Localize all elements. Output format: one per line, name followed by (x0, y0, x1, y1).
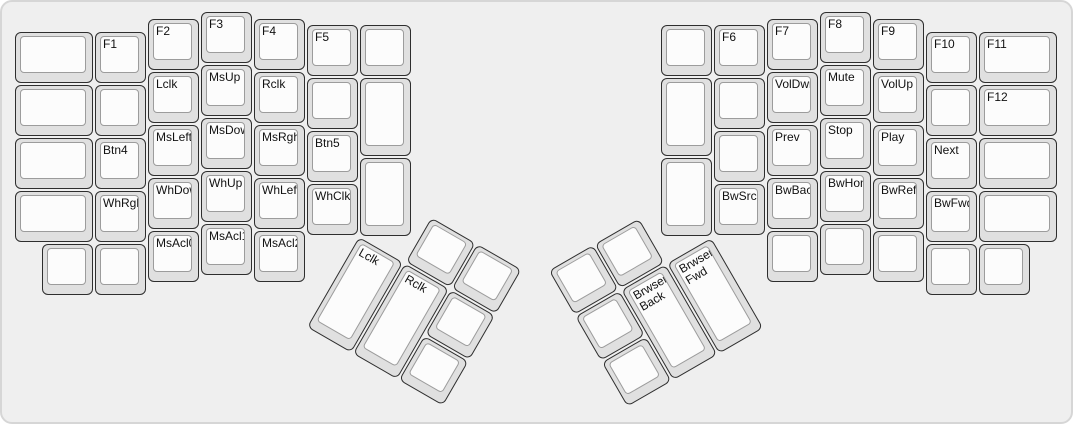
key-label: MsDown (209, 124, 242, 137)
keytop: Stop (825, 122, 864, 159)
key-label: F9 (881, 25, 914, 38)
key-blank[interactable] (979, 244, 1030, 295)
key-label: Play (881, 131, 914, 144)
key-label: F4 (262, 25, 295, 38)
key-stop[interactable]: Stop (820, 118, 871, 169)
key-bwsrch[interactable]: BwSrch (714, 184, 765, 235)
key-f5[interactable]: F5 (307, 25, 358, 76)
key-msleft[interactable]: MsLeft (148, 125, 199, 176)
keytop: F9 (878, 23, 917, 60)
key-volup[interactable]: VolUp (873, 72, 924, 123)
key-whleft[interactable]: WhLeft (254, 178, 305, 229)
key-blank[interactable] (360, 25, 411, 76)
key-blank[interactable] (661, 158, 712, 236)
key-mute[interactable]: Mute (820, 65, 871, 116)
key-label: BwHome (828, 177, 861, 190)
key-label: F6 (722, 31, 755, 44)
key-label: MsUp (209, 71, 242, 84)
keytop (365, 82, 404, 146)
keytop (666, 82, 705, 146)
key-label: F7 (775, 25, 808, 38)
key-blank[interactable] (873, 231, 924, 282)
key-blank[interactable] (95, 85, 146, 136)
key-blank[interactable] (820, 224, 871, 275)
key-label: Stop (828, 124, 861, 137)
key-blank[interactable] (42, 244, 93, 295)
key-f9[interactable]: F9 (873, 19, 924, 70)
keytop (878, 235, 917, 272)
key-btn4[interactable]: Btn4 (95, 138, 146, 189)
keytop (601, 226, 653, 278)
keytop (931, 89, 970, 126)
keytop: MsDown (206, 122, 245, 159)
keytop: Play (878, 129, 917, 166)
key-label: F8 (828, 18, 861, 31)
keytop: MsLeft (153, 129, 192, 166)
keytop (20, 89, 86, 126)
key-blank[interactable] (714, 78, 765, 129)
key-bwhome[interactable]: BwHome (820, 171, 871, 222)
keytop (984, 195, 1050, 232)
key-label (435, 227, 464, 244)
key-label (481, 253, 510, 270)
keytop (47, 248, 86, 285)
key-f1[interactable]: F1 (95, 32, 146, 83)
key-f10[interactable]: F10 (926, 32, 977, 83)
keytop: F1 (100, 36, 139, 73)
keytop: VolDwn (772, 76, 811, 113)
keytop (666, 29, 705, 66)
key-label: WhDown (156, 184, 189, 197)
key-label: F3 (209, 18, 242, 31)
keytop: MsAcl0 (153, 235, 192, 272)
keytop (20, 36, 86, 73)
keytop (825, 228, 864, 265)
key-label: BwRefr (881, 184, 914, 197)
key-label: F11 (987, 38, 1047, 51)
key-label: WhUp (209, 177, 242, 190)
key-label: Mute (828, 71, 861, 84)
key-blank[interactable] (767, 231, 818, 282)
key-voldwn[interactable]: VolDwn (767, 72, 818, 123)
keytop: MsUp (206, 69, 245, 106)
keytop (20, 142, 86, 179)
key-btn5[interactable]: Btn5 (307, 131, 358, 182)
key-label: Brwser Fwd (677, 248, 719, 288)
key-blank[interactable] (979, 191, 1057, 242)
key-f11[interactable]: F11 (979, 32, 1057, 83)
key-rclk[interactable]: Rclk (254, 72, 305, 123)
key-label: F2 (156, 25, 189, 38)
key-whclk[interactable]: WhClk (307, 184, 358, 235)
key-blank[interactable] (95, 244, 146, 295)
key-label: MsLeft (156, 131, 189, 144)
key-label: Prev (775, 131, 808, 144)
keytop: WhUp (206, 175, 245, 212)
keytop (100, 248, 139, 285)
key-blank[interactable] (15, 138, 93, 189)
key-f6[interactable]: F6 (714, 25, 765, 76)
key-label: Rclk (262, 78, 295, 91)
key-f4[interactable]: F4 (254, 19, 305, 70)
keyboard-canvas: F1F2F3F4F5LclkMsUpRclkBtn4MsLeftMsDownMs… (0, 0, 1073, 424)
key-blank[interactable] (15, 32, 93, 83)
key-blank[interactable] (714, 131, 765, 182)
keytop: MsAcl1 (206, 228, 245, 265)
keytop: Rclk (259, 76, 298, 113)
key-prev[interactable]: Prev (767, 125, 818, 176)
key-label: Lclk (156, 78, 189, 91)
key-next[interactable]: Next (926, 138, 977, 189)
keytop (312, 82, 351, 119)
key-label (605, 229, 634, 246)
keytop: WhClk (312, 188, 351, 225)
keytop: F11 (984, 36, 1050, 73)
keytop: Btn4 (100, 142, 139, 179)
key-f8[interactable]: F8 (820, 12, 871, 63)
key-blank[interactable] (15, 85, 93, 136)
key-label: Lclk (356, 246, 391, 274)
key-label: WhLeft (262, 184, 295, 197)
keytop: WhLeft (259, 182, 298, 219)
key-play[interactable]: Play (873, 125, 924, 176)
keytop (666, 162, 705, 226)
keytop: F5 (312, 29, 351, 66)
key-label: VolUp (881, 78, 914, 91)
keytop: F4 (259, 23, 298, 60)
keytop: MsAcl2 (259, 235, 298, 272)
keytop (555, 252, 607, 304)
key-msrght[interactable]: MsRght (254, 125, 305, 176)
key-whup[interactable]: WhUp (201, 171, 252, 222)
keytop: BwSrch (719, 188, 758, 225)
key-label: Brwser Back (631, 275, 673, 315)
keytop (415, 224, 467, 276)
key-msdown[interactable]: MsDown (201, 118, 252, 169)
keytop: VolUp (878, 76, 917, 113)
key-bwrefr[interactable]: BwRefr (873, 178, 924, 229)
keytop: WhDown (153, 182, 192, 219)
key-lclk[interactable]: Lclk (148, 72, 199, 123)
key-label: MsRght (262, 131, 295, 144)
key-label (559, 255, 588, 272)
key-blank[interactable] (360, 78, 411, 156)
keytop: F8 (825, 16, 864, 53)
key-msacl2[interactable]: MsAcl2 (254, 231, 305, 282)
key-f12[interactable]: F12 (979, 85, 1057, 136)
keytop: F6 (719, 29, 758, 66)
key-blank[interactable] (926, 244, 977, 295)
key-f3[interactable]: F3 (201, 12, 252, 63)
key-blank[interactable] (307, 78, 358, 129)
keytop: F3 (206, 16, 245, 53)
keytop (931, 248, 970, 285)
keytop: Lclk (153, 76, 192, 113)
key-bwfwd[interactable]: BwFwd (926, 191, 977, 242)
key-f2[interactable]: F2 (148, 19, 199, 70)
keytop: BwHome (825, 175, 864, 212)
keytop: Mute (825, 69, 864, 106)
keytop (772, 235, 811, 272)
key-blank[interactable] (661, 25, 712, 76)
key-label: BwBack (775, 184, 808, 197)
keytop: F2 (153, 23, 192, 60)
key-label: F12 (987, 91, 1047, 104)
key-label: WhClk (315, 190, 348, 203)
key-whdown[interactable]: WhDown (148, 178, 199, 229)
keytop (20, 195, 86, 232)
keytop (719, 135, 758, 172)
key-label: MsAcl2 (262, 237, 295, 250)
key-label: F10 (934, 38, 967, 51)
keytop (365, 29, 404, 66)
key-blank[interactable] (360, 158, 411, 236)
keytop (719, 82, 758, 119)
key-label: Btn5 (315, 137, 348, 150)
keytop: BwFwd (931, 195, 970, 232)
key-bwback[interactable]: BwBack (767, 178, 818, 229)
key-label: VolDwn (775, 78, 808, 91)
key-label: MsAcl1 (209, 230, 242, 243)
key-label: BwSrch (722, 190, 755, 203)
keytop (100, 89, 139, 126)
keytop: Prev (772, 129, 811, 166)
keytop (984, 142, 1050, 179)
key-label: Btn4 (103, 144, 136, 157)
key-label: MsAcl0 (156, 237, 189, 250)
key-msacl1[interactable]: MsAcl1 (201, 224, 252, 275)
keytop: BwRefr (878, 182, 917, 219)
key-blank[interactable] (979, 138, 1057, 189)
keytop: Btn5 (312, 135, 351, 172)
key-label: BwFwd (934, 197, 967, 210)
key-whrght[interactable]: WhRght (95, 191, 146, 242)
key-blank[interactable] (926, 85, 977, 136)
keytop: WhRght (100, 195, 139, 232)
keytop: F7 (772, 23, 811, 60)
key-label: Next (934, 144, 967, 157)
key-blank[interactable] (661, 78, 712, 156)
key-msup[interactable]: MsUp (201, 65, 252, 116)
key-msacl0[interactable]: MsAcl0 (148, 231, 199, 282)
keytop (984, 248, 1023, 285)
keytop (365, 162, 404, 226)
keytop: F10 (931, 36, 970, 73)
key-label: F5 (315, 31, 348, 44)
keytop: F12 (984, 89, 1050, 126)
key-label: WhRght (103, 197, 136, 210)
key-f7[interactable]: F7 (767, 19, 818, 70)
key-blank[interactable] (15, 191, 93, 242)
keytop (461, 250, 513, 302)
keytop: BwBack (772, 182, 811, 219)
key-label: F1 (103, 38, 136, 51)
keytop: Next (931, 142, 970, 179)
keytop: MsRght (259, 129, 298, 166)
